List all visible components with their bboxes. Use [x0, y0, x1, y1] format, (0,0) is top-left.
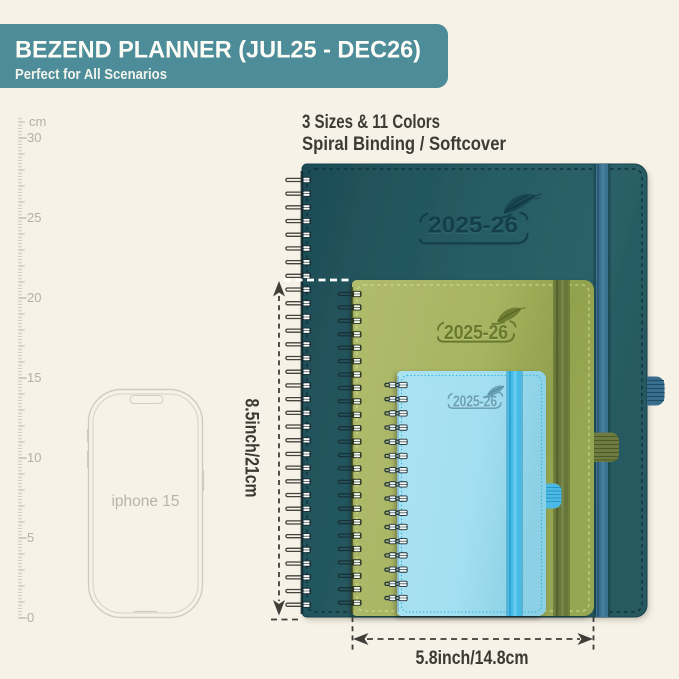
svg-text:10: 10	[27, 450, 41, 465]
svg-text:25: 25	[27, 210, 41, 225]
svg-text:cm: cm	[29, 114, 46, 129]
svg-text:15: 15	[27, 370, 41, 385]
svg-text:2025-26: 2025-26	[428, 212, 518, 238]
svg-text:3 Sizes & 11 Colors: 3 Sizes & 11 Colors	[302, 111, 440, 133]
svg-text:BEZEND PLANNER (JUL25 - DEC26): BEZEND PLANNER (JUL25 - DEC26)	[15, 37, 421, 64]
svg-text:0: 0	[27, 610, 34, 625]
svg-text:5.8inch/14.8cm: 5.8inch/14.8cm	[416, 647, 529, 669]
svg-text:Spiral Binding / Softcover: Spiral Binding / Softcover	[302, 133, 506, 155]
svg-text:8.5inch/21cm: 8.5inch/21cm	[241, 399, 263, 498]
svg-text:5: 5	[27, 530, 34, 545]
svg-text:30: 30	[27, 130, 41, 145]
svg-text:iphone 15: iphone 15	[111, 493, 179, 510]
svg-text:Perfect for All Scenarios: Perfect for All Scenarios	[15, 66, 167, 83]
svg-text:20: 20	[27, 290, 41, 305]
